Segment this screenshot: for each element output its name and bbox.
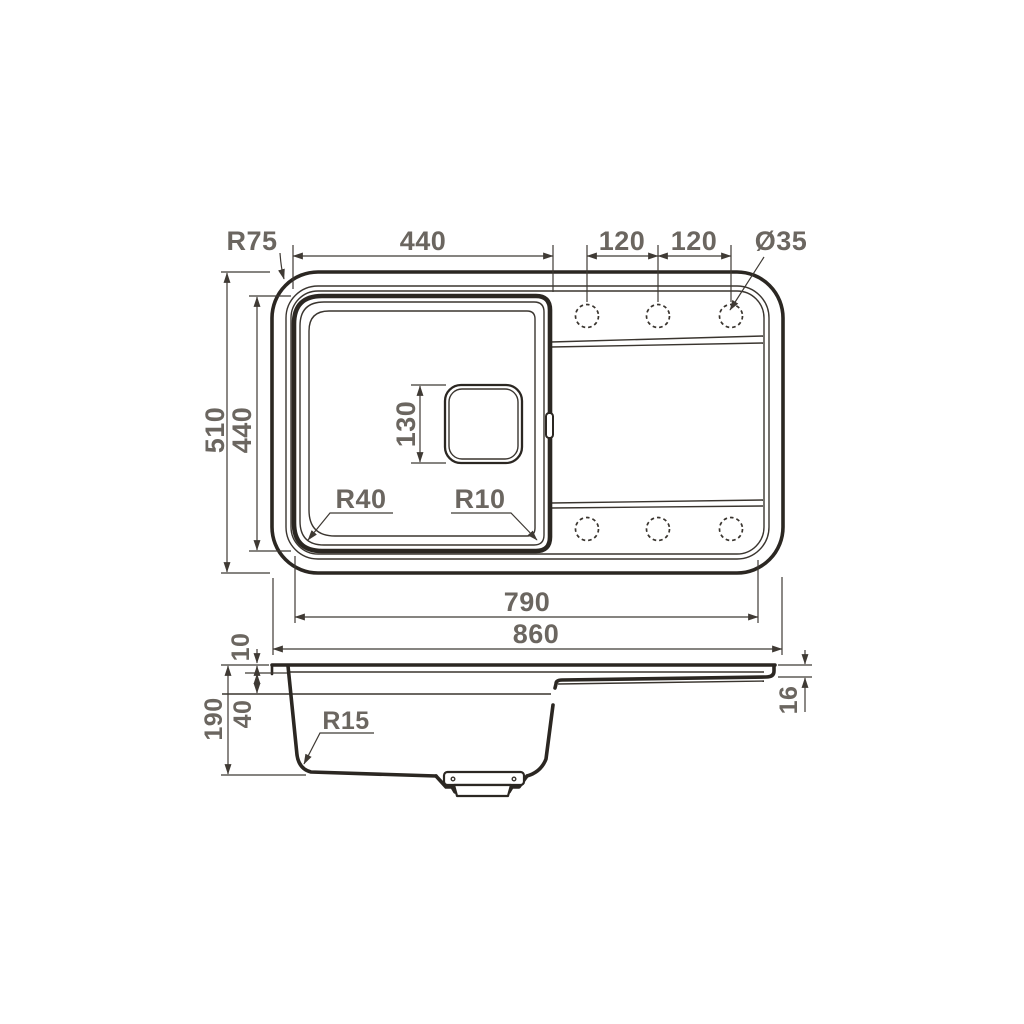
dim-label-hole-spacing-1: 120 xyxy=(599,226,646,256)
dim-label-overall-length: 860 xyxy=(513,619,560,649)
tap-hole-top-2 xyxy=(647,305,670,328)
dim-label-drain-size: 130 xyxy=(391,401,421,448)
tap-hole-bottom-3 xyxy=(720,518,743,541)
dim-label-hole-diameter: Ø35 xyxy=(755,226,808,256)
sink-outer-outline xyxy=(272,272,783,573)
drawing-canvas: R75 440 120 120 Ø35 510 440 130 R40 R10 … xyxy=(0,0,1024,1024)
drain-hole-inner xyxy=(449,389,518,459)
drain-hole-outer xyxy=(445,385,522,463)
dim-label-overall-depth: 510 xyxy=(200,407,230,454)
dim-label-upper-ledge-depth: 40 xyxy=(229,700,257,729)
drainer-groove-lines xyxy=(551,336,763,508)
overflow-notch xyxy=(546,413,553,438)
drain-fitting xyxy=(444,772,524,796)
dim-label-inner-length: 790 xyxy=(504,587,551,617)
dim-label-bowl-depth: 440 xyxy=(227,407,257,454)
dim-label-bottom-corner-radius: R15 xyxy=(322,707,369,735)
side-view: 10 190 40 R15 16 xyxy=(200,633,812,796)
leader-corner-radius xyxy=(280,253,284,279)
tap-hole-bottom-2 xyxy=(647,518,670,541)
dim-label-bowl-floor-radius: R40 xyxy=(335,484,386,514)
dim-label-corner-radius: R75 xyxy=(226,226,277,256)
tap-hole-top-1 xyxy=(576,305,599,328)
rim-inner-line-outer xyxy=(286,286,769,559)
dim-label-edge-thickness: 16 xyxy=(775,686,803,715)
top-view: R75 440 120 120 Ø35 510 440 130 R40 R10 … xyxy=(200,226,807,655)
dim-label-bowl-edge-radius: R10 xyxy=(454,484,505,514)
rim-inner-line-inner xyxy=(291,291,764,554)
dim-label-hole-spacing-2: 120 xyxy=(671,226,718,256)
dim-label-bowl-width: 440 xyxy=(400,226,447,256)
sink-technical-drawing: R75 440 120 120 Ø35 510 440 130 R40 R10 … xyxy=(0,0,1024,1024)
leader-bottom-corner-radius xyxy=(304,733,374,764)
dim-label-overall-height: 190 xyxy=(200,697,228,740)
tap-hole-bottom-1 xyxy=(576,518,599,541)
dim-label-rim-thickness: 10 xyxy=(227,633,255,662)
